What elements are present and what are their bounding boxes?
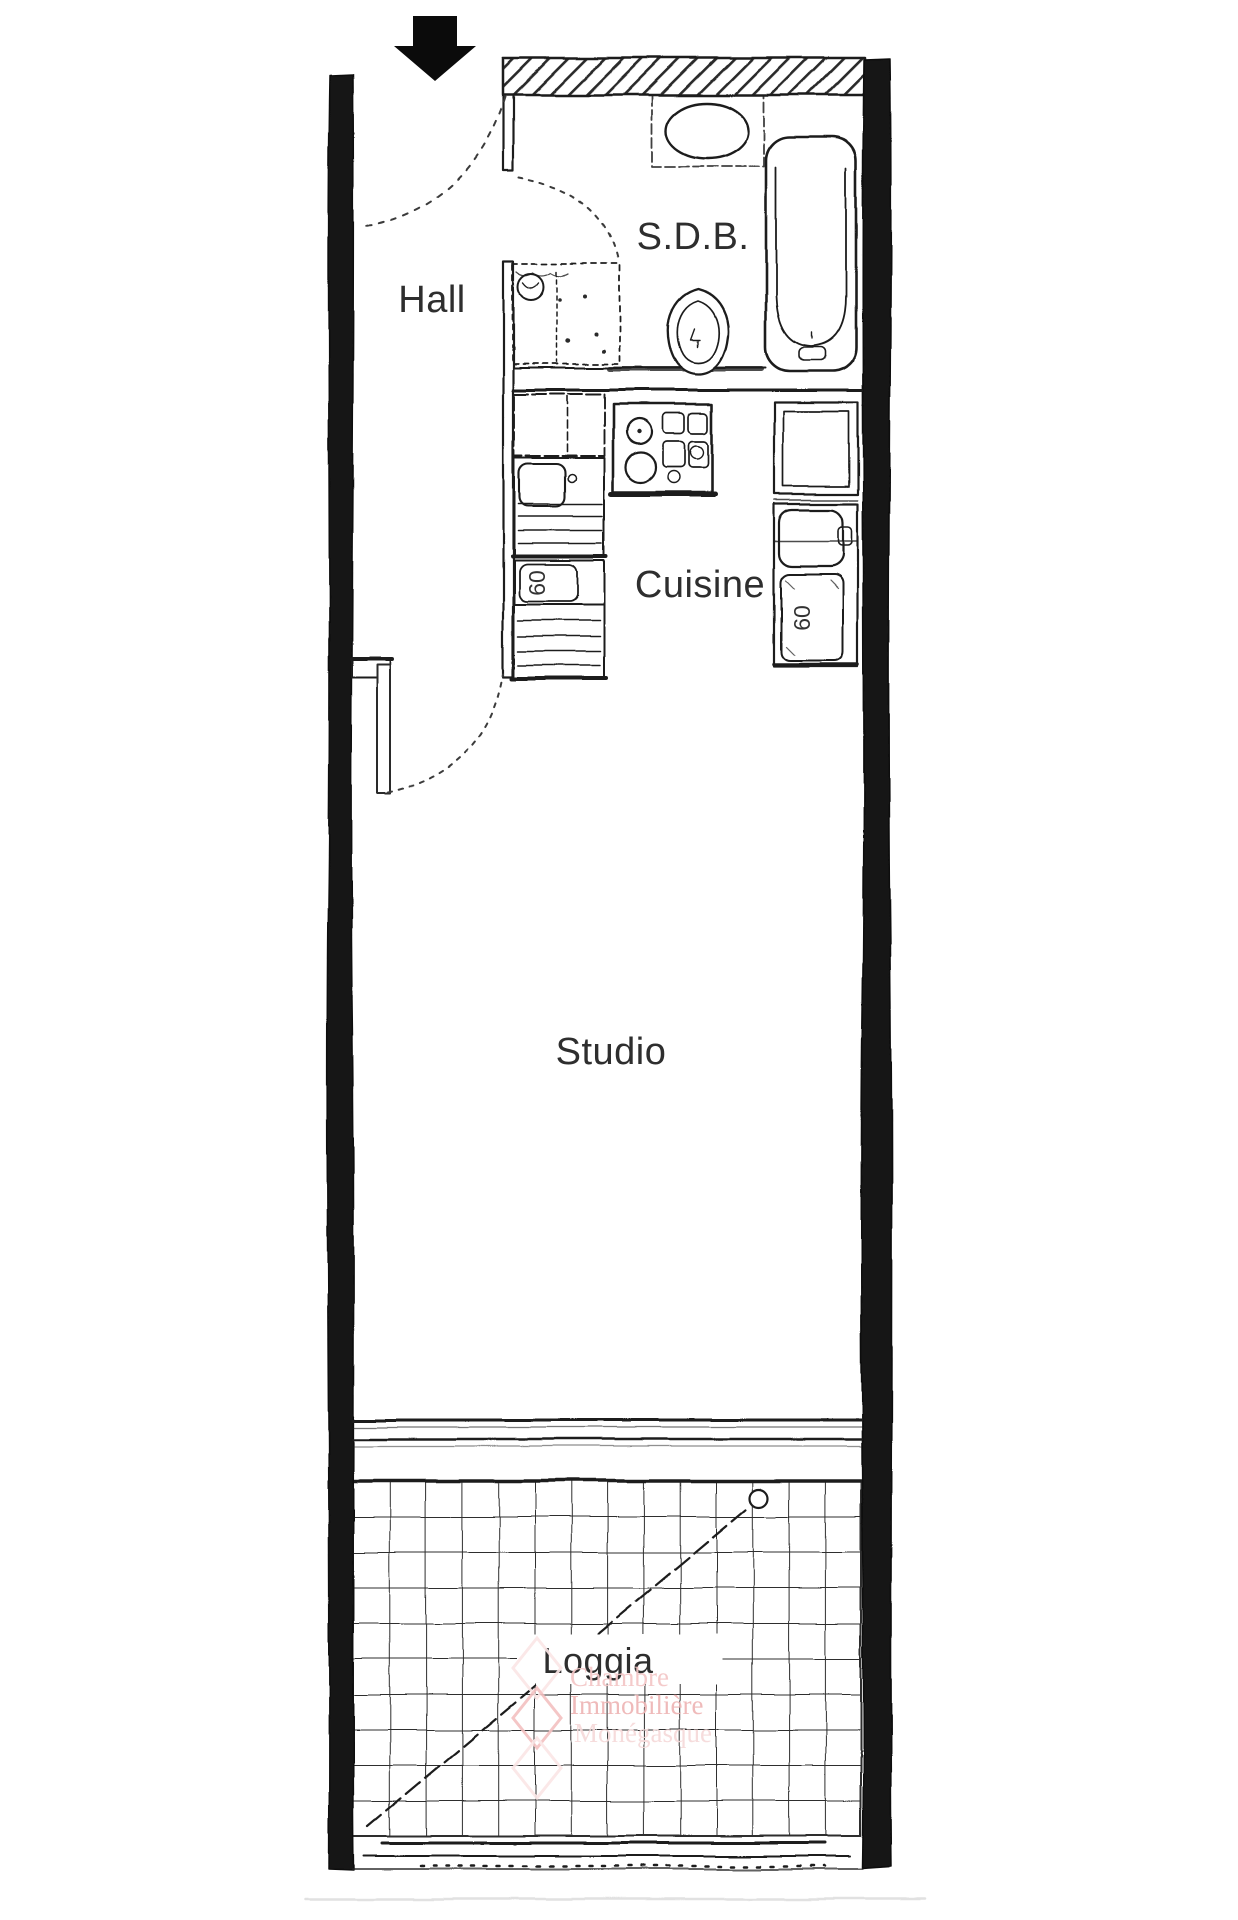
room-label-cuisine: Cuisine	[635, 564, 765, 606]
floor-plan-drawing: Hall S.D.B. Cuisine Studio Loggia 60 60 …	[0, 0, 1238, 1920]
room-label-sdb: S.D.B.	[637, 216, 750, 258]
drain-point-icon	[750, 1489, 768, 1507]
room-labels: Hall S.D.B. Cuisine Studio Loggia 60 60	[398, 216, 815, 1681]
refrigerator-icon	[774, 402, 858, 494]
dimension-label-left-60: 60	[524, 570, 550, 596]
room-label-hall: Hall	[398, 279, 465, 321]
sliding-window	[353, 1420, 861, 1446]
bathroom-door-swing-arc	[519, 177, 619, 261]
kitchen-right-column	[774, 402, 858, 666]
studio-door-leaf	[377, 664, 390, 794]
washbasin-icon	[666, 103, 748, 159]
studio-door-swing-arc	[388, 673, 503, 793]
left-wall	[327, 74, 354, 1870]
stove-icon	[611, 404, 715, 494]
dimension-label-right-60: 60	[789, 605, 815, 631]
watermark-line-1: Chambre	[570, 1662, 669, 1692]
entrance-arrow-icon	[394, 16, 476, 81]
utility-closet	[512, 264, 620, 364]
watermark-line-3: Monégasque	[574, 1718, 712, 1748]
kitchen-small-sink-icon	[519, 464, 565, 506]
kitchen-left-cabinets	[512, 394, 606, 678]
watermark-line-2: Immobilière	[570, 1690, 703, 1720]
water-heater-icon	[518, 274, 544, 300]
kitchen-sink-icon	[779, 510, 843, 566]
top-wall	[503, 58, 865, 95]
room-label-studio: Studio	[556, 1031, 667, 1073]
bathtub-icon	[766, 137, 856, 371]
hall-partition-wall	[503, 96, 513, 676]
toilet-icon	[668, 289, 728, 374]
entry-door-swing-arc	[362, 97, 505, 227]
right-wall	[861, 59, 892, 1868]
floor-plan: Hall S.D.B. Cuisine Studio Loggia 60 60 …	[0, 0, 1238, 1920]
doors	[362, 97, 619, 794]
kitchen-fixtures	[512, 394, 858, 678]
